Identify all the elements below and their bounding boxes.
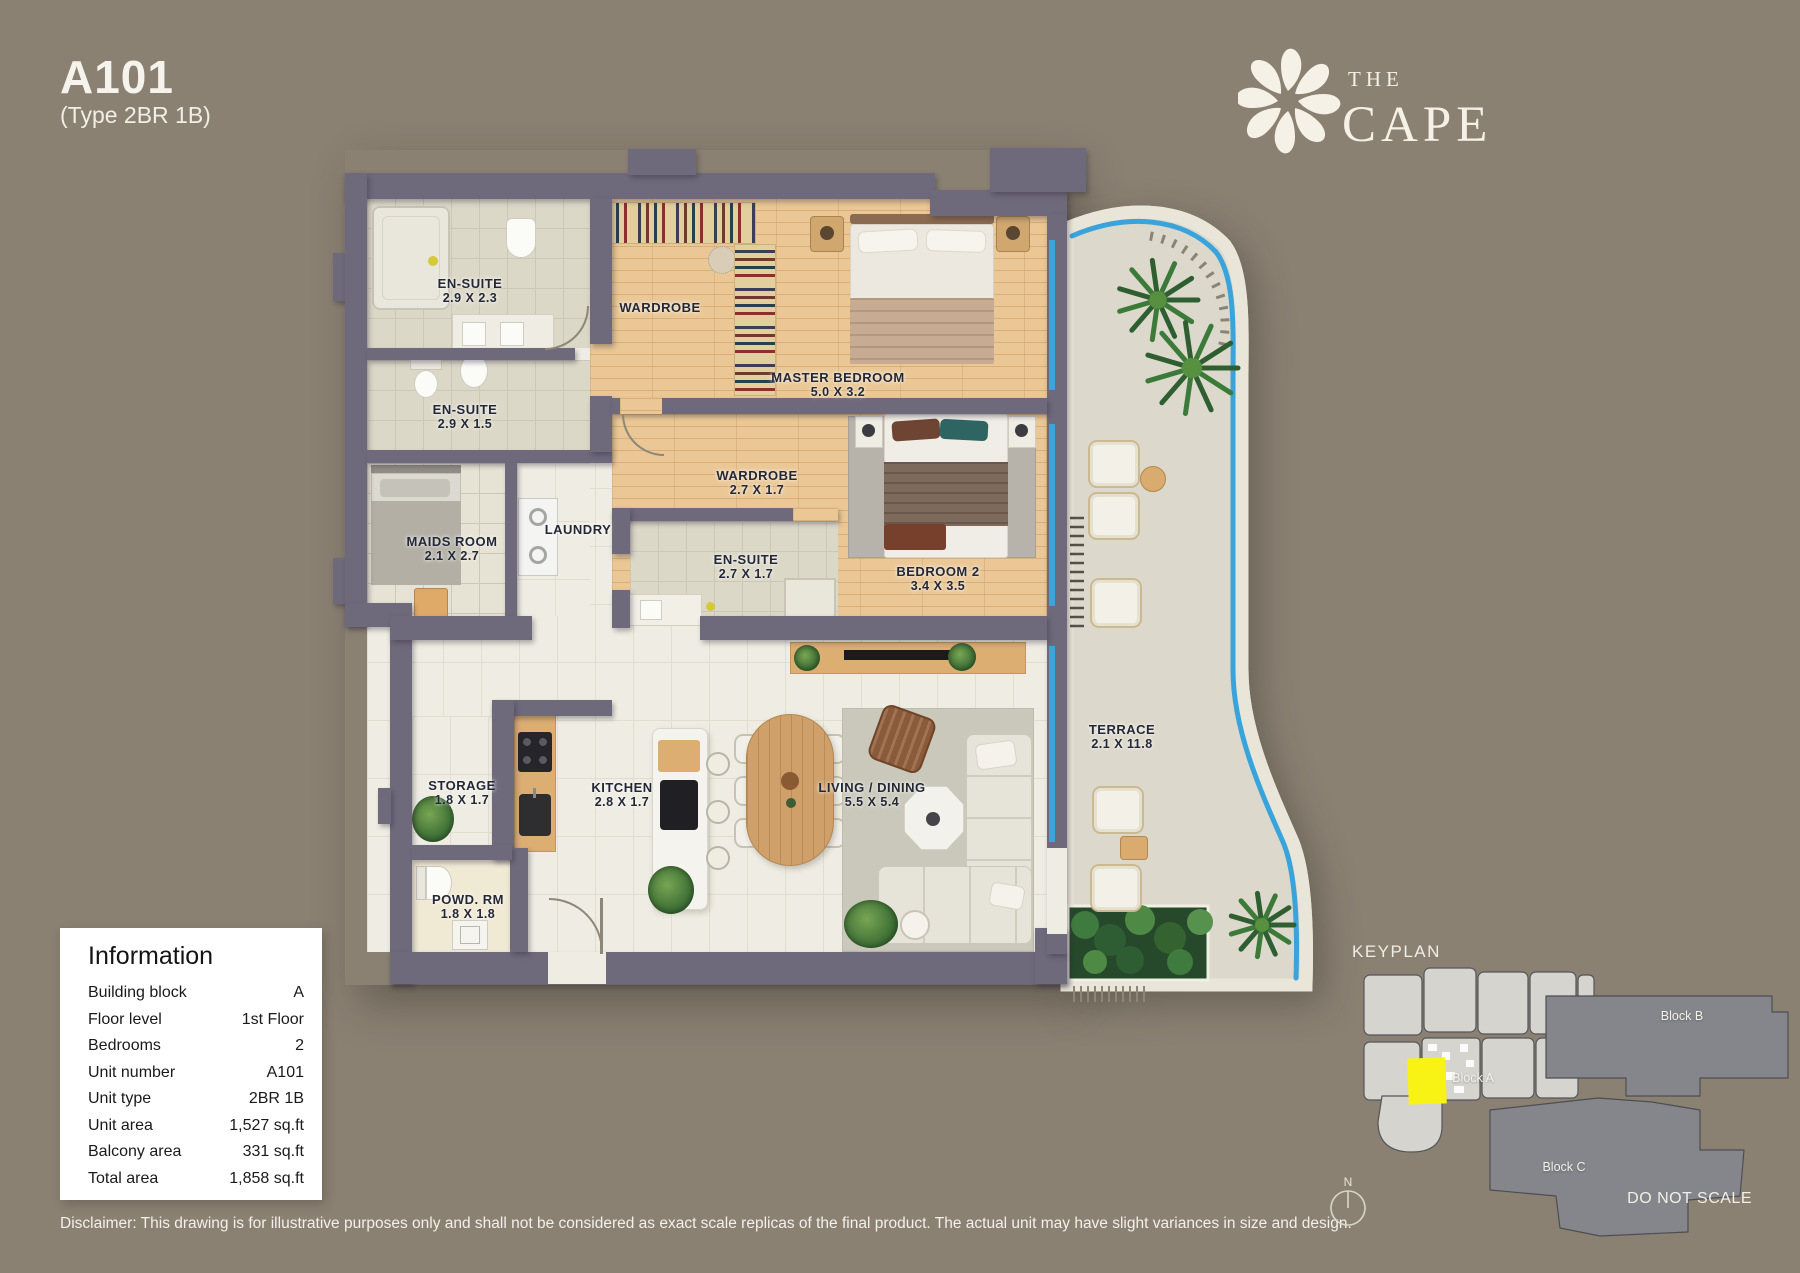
lamp (1015, 424, 1028, 437)
terrace-chair (1090, 578, 1142, 628)
pouf (900, 910, 930, 940)
wall (390, 616, 532, 640)
wall (367, 450, 612, 463)
info-panel: Information Building blockAFloor level1s… (60, 928, 322, 1200)
accent-dot (706, 602, 715, 611)
info-row: Floor level1st Floor (88, 1007, 304, 1034)
stool (706, 752, 730, 776)
bed-throw (850, 298, 994, 364)
wall (700, 616, 1047, 640)
bed-runner (884, 524, 946, 550)
room-label-living-dining: LIVING / DINING5.5 X 5.4 (757, 780, 987, 810)
sink (462, 322, 486, 346)
wardrobe-rack (594, 202, 756, 244)
toilet (414, 370, 438, 398)
table-decor (926, 812, 940, 826)
lamp (862, 424, 875, 437)
pillow (940, 419, 989, 441)
info-row: Unit area1,527 sq.ft (88, 1113, 304, 1140)
pillow (380, 479, 450, 497)
svg-text:N: N (1344, 1175, 1353, 1189)
page-title-unit-code: A101 (60, 50, 174, 104)
room-label-wardrobe-master: WARDROBE (545, 300, 775, 315)
info-row: Unit type2BR 1B (88, 1086, 304, 1113)
room-label-terrace: TERRACE2.1 X 11.8 (1007, 722, 1237, 752)
room-label-ensuite-2: EN-SUITE2.9 X 1.5 (350, 402, 580, 432)
sink (500, 322, 524, 346)
wall (612, 590, 630, 628)
accent-dot (428, 256, 438, 266)
room-label-master-bedroom: MASTER BEDROOM5.0 X 3.2 (723, 370, 953, 400)
window (1049, 240, 1055, 390)
terrace-door-opening (1047, 848, 1067, 934)
keyplan-label-block-c: Block C (1504, 1160, 1624, 1174)
cooktop (518, 732, 552, 772)
lamp (820, 226, 834, 240)
wall (367, 348, 575, 360)
entrance-opening (548, 952, 606, 984)
plant (648, 866, 694, 914)
wall (590, 198, 612, 344)
plant (794, 645, 820, 671)
wall (990, 148, 1086, 192)
info-row: Unit numberA101 (88, 1060, 304, 1087)
pillow (857, 228, 918, 253)
page-subtitle-unit-type: (Type 2BR 1B) (60, 102, 211, 129)
pillow (926, 229, 987, 253)
brand-logo: THE CAPE (1238, 44, 1508, 162)
wall (628, 149, 696, 175)
terrace-chair (1088, 440, 1140, 488)
wall (612, 398, 1047, 414)
info-row: Total area1,858 sq.ft (88, 1166, 304, 1193)
info-row: Building blockA (88, 980, 304, 1007)
maids-cabinet (414, 588, 448, 618)
terrace-area (1040, 150, 1340, 1020)
wall (345, 173, 935, 199)
room-label-wardrobe-2: WARDROBE2.7 X 1.7 (642, 468, 872, 498)
plant (948, 643, 976, 671)
disclaimer-text: Disclaimer: This drawing is for illustra… (60, 1215, 1260, 1233)
info-rows: Building blockAFloor level1st FloorBedro… (88, 980, 304, 1192)
terrace-chair (1090, 864, 1142, 912)
sink (640, 600, 662, 620)
info-panel-title: Information (88, 942, 213, 971)
brand-word-bottom: CAPE (1342, 97, 1492, 153)
keyplan-label-block-b: Block B (1622, 1009, 1742, 1023)
plant (844, 900, 898, 948)
powder-sink-basin (460, 926, 480, 944)
room-label-laundry: LAUNDRY (463, 522, 693, 537)
terrace-chair (1092, 786, 1144, 834)
do-not-scale-note: DO NOT SCALE (1592, 1190, 1752, 1208)
toilet (506, 218, 536, 258)
pillow (891, 418, 940, 441)
wall (590, 396, 612, 452)
room-label-bedroom-2: BEDROOM 23.4 X 3.5 (823, 564, 1053, 594)
stool (706, 846, 730, 870)
room-label-maids-room: MAIDS ROOM2.1 X 2.7 (337, 534, 567, 564)
room-label-kitchen: KITCHEN2.8 X 1.7 (507, 780, 737, 810)
wall (390, 952, 1067, 984)
pouf (708, 246, 736, 274)
keyplan-map: N (1320, 940, 1800, 1260)
info-row: Bedrooms2 (88, 1033, 304, 1060)
terrace-table (1140, 466, 1166, 492)
page: A101 (Type 2BR 1B) THE CAPE (0, 0, 1800, 1273)
north-arrow: N (1331, 1175, 1365, 1225)
terrace-stool (1120, 836, 1148, 860)
door-leaf (600, 898, 603, 954)
maids-bed-headboard (371, 465, 461, 473)
brand-word-top: THE (1348, 67, 1404, 91)
terrace-chair (1088, 492, 1140, 540)
info-row: Balcony area331 sq.ft (88, 1139, 304, 1166)
flower-icon (1238, 49, 1340, 154)
lamp (1006, 226, 1020, 240)
door-opening (620, 398, 662, 414)
tv (844, 650, 962, 660)
wall (412, 845, 512, 860)
wall (930, 190, 1067, 216)
keyplan-label-block-a: Block A (1413, 1071, 1533, 1085)
bed-throw (884, 462, 1008, 526)
island-tray (658, 740, 700, 772)
room-label-powder-room: POWD. RM1.8 X 1.8 (353, 892, 583, 922)
door-opening (793, 508, 838, 521)
